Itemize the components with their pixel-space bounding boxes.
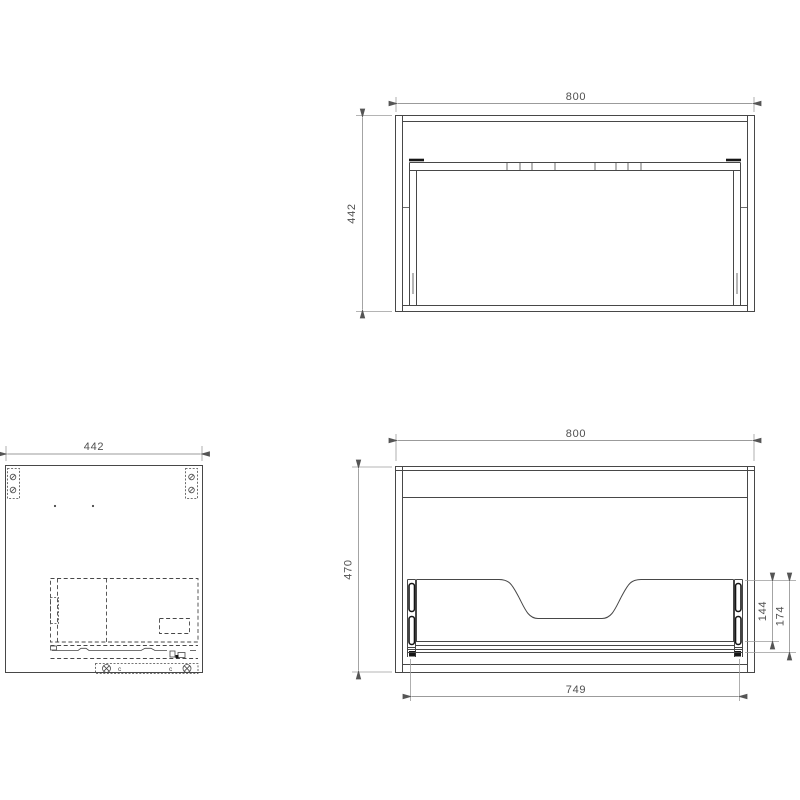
side-fitting-top-left [8, 469, 20, 499]
fastener-mark: c [118, 666, 122, 673]
side-slide-rail-hidden: c c [51, 646, 199, 674]
cabinet-technical-drawing: 800 442 [0, 0, 800, 800]
slide-slot [736, 584, 742, 612]
slide-slot [736, 617, 742, 645]
slide-slot [409, 584, 415, 612]
front-height-label: 470 [343, 559, 355, 579]
front-dim-drawer-width: 749 [411, 659, 740, 701]
side-fitting-top-right [186, 469, 198, 499]
back-height-label: 174 [775, 606, 787, 626]
drawer-width-label: 749 [566, 684, 586, 696]
front-dim-height: 470 [343, 467, 393, 672]
side-dim-depth: 442 [6, 441, 202, 461]
hanging-rail-slots [507, 163, 641, 171]
slide-foot [409, 651, 416, 657]
cutout-height-label: 144 [757, 601, 769, 621]
side-view: c c 442 [6, 441, 203, 674]
front-view: 800 470 749 144 174 [343, 428, 797, 701]
front-drawer-slide-right [735, 580, 743, 658]
side-drawer-hidden-lines [51, 579, 199, 643]
side-panel-joint-marks [403, 208, 748, 295]
plan-drawer-box [403, 160, 748, 306]
front-drawer-back-panel [417, 580, 734, 642]
front-drawer-bottom [408, 642, 743, 653]
plan-cabinet-outline [396, 116, 755, 312]
slide-foot [735, 651, 742, 657]
side-depth-label: 442 [84, 441, 104, 453]
front-drawer-slide-left [408, 580, 416, 658]
front-dim-cutout-height: 144 [745, 581, 796, 642]
fastener-mark: c [169, 666, 173, 673]
plan-width-label: 800 [566, 91, 586, 103]
plan-dim-width: 800 [396, 91, 754, 112]
cam-lock-icon [183, 665, 191, 673]
plan-view: 800 442 [346, 91, 755, 312]
front-dim-width: 800 [396, 428, 754, 461]
side-drill-dots [54, 505, 94, 507]
drawer-fitting-hidden [160, 619, 190, 634]
front-width-label: 800 [566, 428, 586, 440]
plan-depth-label: 442 [346, 203, 358, 223]
plan-dim-depth: 442 [346, 116, 392, 312]
side-panel-outline [6, 466, 203, 673]
cam-lock-icon [103, 665, 111, 673]
front-dim-back-height: 174 [745, 582, 796, 653]
plumbing-cutout-curve [417, 580, 734, 619]
slide-slot [409, 617, 415, 645]
